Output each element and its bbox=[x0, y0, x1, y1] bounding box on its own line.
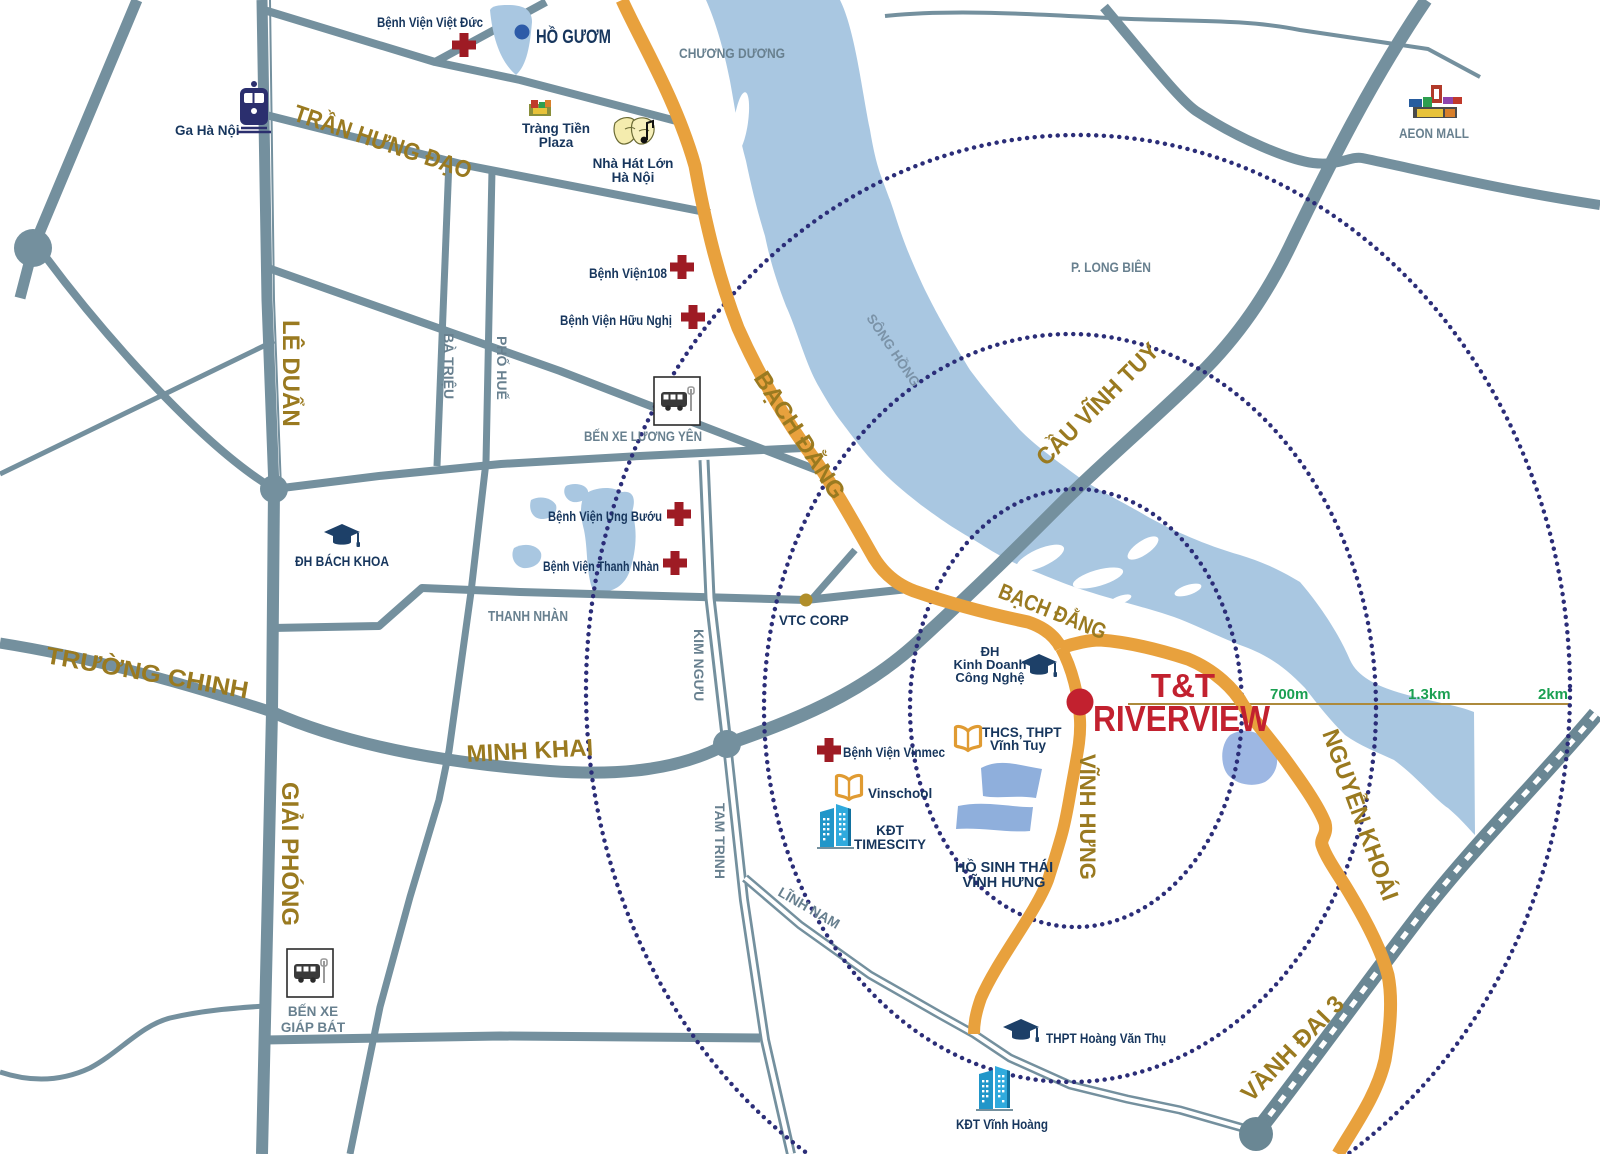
svg-text:KĐT Vĩnh Hoàng: KĐT Vĩnh Hoàng bbox=[956, 1117, 1048, 1132]
svg-text:PHỐ HUẾ: PHỐ HUẾ bbox=[494, 336, 511, 400]
svg-text:CHƯƠNG DƯƠNG: CHƯƠNG DƯƠNG bbox=[679, 45, 785, 61]
svg-text:LÊ DUẨN: LÊ DUẨN bbox=[277, 320, 305, 427]
svg-text:Bệnh Viện108: Bệnh Viện108 bbox=[589, 266, 667, 281]
svg-text:GIÁP BÁT: GIÁP BÁT bbox=[281, 1020, 346, 1035]
svg-text:KIM NGƯU: KIM NGƯU bbox=[691, 629, 707, 701]
svg-text:Bệnh Viện Ung Bướu: Bệnh Viện Ung Bướu bbox=[548, 509, 662, 524]
svg-text:BẾN XE LƯƠNG YÊN: BẾN XE LƯƠNG YÊN bbox=[584, 429, 702, 444]
svg-text:BẾN XE: BẾN XE bbox=[288, 1004, 338, 1019]
svg-text:Bệnh Viện Việt Đức: Bệnh Viện Việt Đức bbox=[377, 15, 483, 30]
svg-text:P. LONG BIÊN: P. LONG BIÊN bbox=[1071, 258, 1151, 275]
svg-text:RIVERVIEW: RIVERVIEW bbox=[1093, 698, 1270, 739]
svg-text:VTC CORP: VTC CORP bbox=[779, 613, 849, 628]
svg-text:GIẢI PHÓNG: GIẢI PHÓNG bbox=[276, 782, 305, 926]
svg-text:THPT Hoàng Văn Thụ: THPT Hoàng Văn Thụ bbox=[1046, 1031, 1166, 1046]
svg-text:1.3km: 1.3km bbox=[1408, 686, 1451, 703]
svg-text:Vĩnh Tuy: Vĩnh Tuy bbox=[990, 738, 1046, 753]
svg-text:KĐT: KĐT bbox=[876, 823, 904, 838]
svg-text:Công Nghệ: Công Nghệ bbox=[955, 670, 1024, 685]
svg-text:BÀ TRIỆU: BÀ TRIỆU bbox=[441, 333, 458, 399]
svg-text:HỒ GƯƠM: HỒ GƯƠM bbox=[536, 26, 611, 48]
svg-text:700m: 700m bbox=[1270, 686, 1308, 703]
svg-text:ĐH BÁCH KHOA: ĐH BÁCH KHOA bbox=[295, 554, 389, 569]
svg-text:TAM TRINH: TAM TRINH bbox=[712, 803, 728, 879]
svg-text:THANH NHÀN: THANH NHÀN bbox=[488, 608, 568, 625]
svg-text:2km: 2km bbox=[1538, 686, 1568, 703]
svg-text:VĨNH HƯNG: VĨNH HƯNG bbox=[963, 873, 1046, 891]
svg-text:Nhà Hát Lớn: Nhà Hát Lớn bbox=[593, 156, 674, 171]
svg-text:Bệnh Viện Vinmec: Bệnh Viện Vinmec bbox=[843, 745, 945, 760]
svg-text:Vinschool: Vinschool bbox=[868, 786, 932, 801]
svg-text:AEON MALL: AEON MALL bbox=[1399, 125, 1469, 141]
svg-text:Hà Nội: Hà Nội bbox=[612, 170, 655, 185]
svg-text:Bệnh Viện Hữu Nghị: Bệnh Viện Hữu Nghị bbox=[560, 313, 672, 328]
svg-text:Plaza: Plaza bbox=[539, 135, 574, 150]
svg-text:Tràng Tiền: Tràng Tiền bbox=[522, 121, 590, 136]
svg-text:VĨNH HƯNG: VĨNH HƯNG bbox=[1075, 754, 1100, 880]
svg-text:Ga Hà Nội: Ga Hà Nội bbox=[175, 123, 240, 138]
svg-text:HỒ SINH THÁI: HỒ SINH THÁI bbox=[955, 858, 1053, 876]
svg-text:TIMESCITY: TIMESCITY bbox=[854, 837, 926, 852]
svg-text:Bệnh Viện Thanh Nhàn: Bệnh Viện Thanh Nhàn bbox=[543, 559, 659, 574]
